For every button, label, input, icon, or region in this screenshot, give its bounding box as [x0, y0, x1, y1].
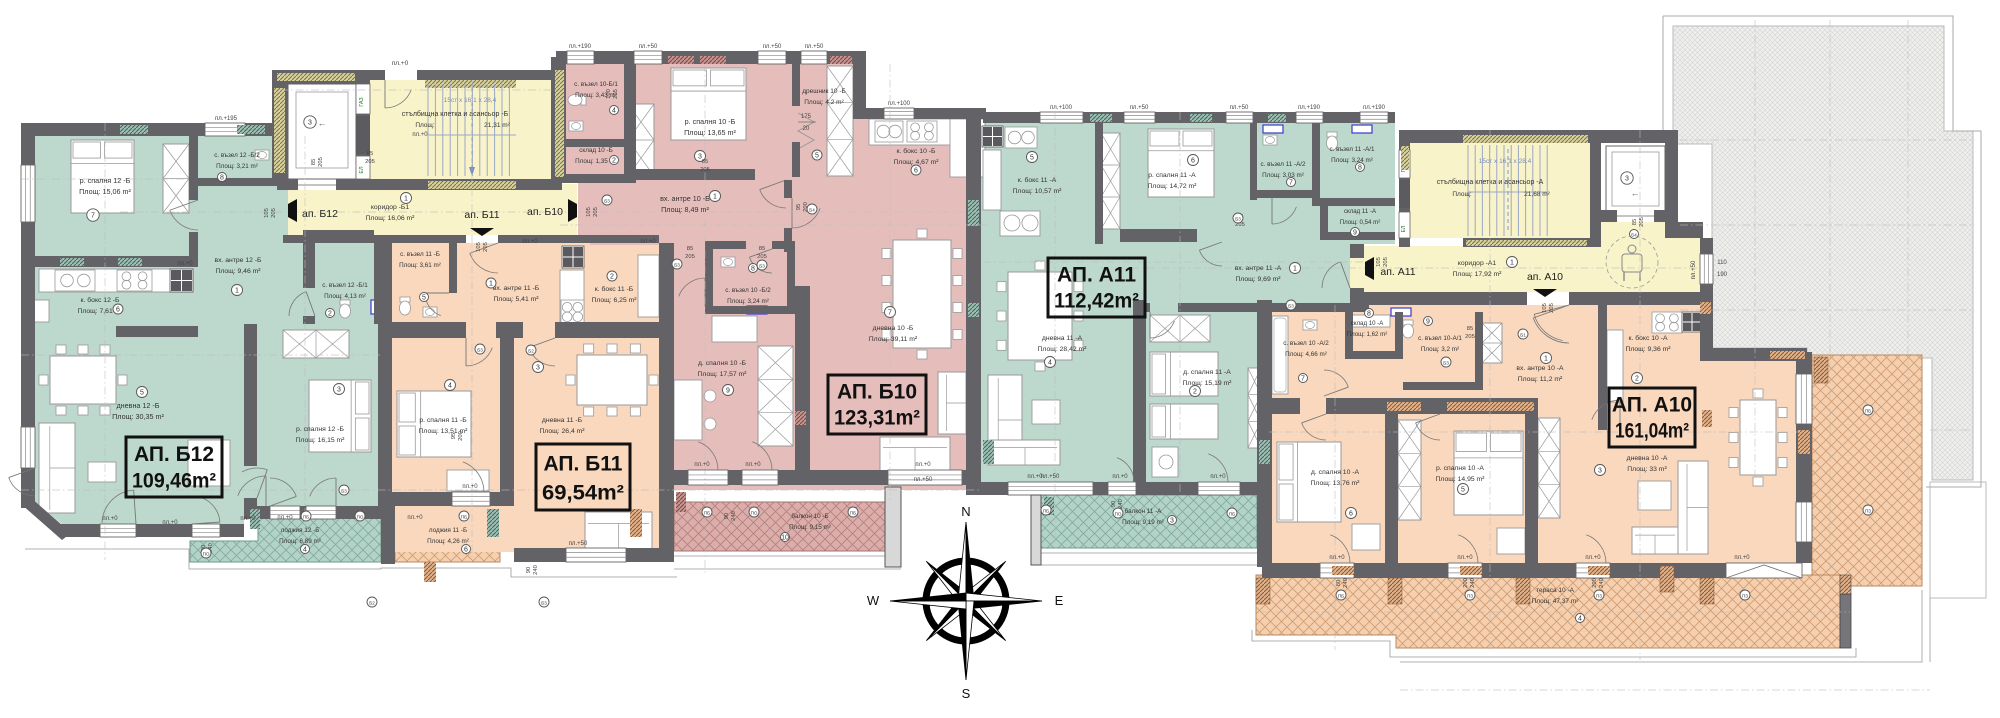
svg-text:90: 90: [724, 513, 730, 519]
svg-text:к. бокс 11 -Б: к. бокс 11 -Б: [595, 285, 634, 293]
svg-text:р. спалня 11 -А: р. спалня 11 -А: [1148, 172, 1196, 179]
svg-text:Площ: 3,61 m²: Площ: 3,61 m²: [399, 262, 441, 269]
svg-text:стълбищна клетка и асансьор -Б: стълбищна клетка и асансьор -Б: [402, 110, 509, 118]
svg-text:дрешник 10 -Б: дрешник 10 -Б: [802, 88, 846, 95]
svg-text:20: 20: [803, 126, 810, 132]
svg-text:ЕЛ: ЕЛ: [1401, 226, 1407, 233]
svg-text:7: 7: [1301, 375, 1305, 382]
svg-text:пл.+50: пл.+50: [639, 44, 658, 50]
svg-text:105: 105: [476, 242, 482, 252]
svg-text:Площ: 33 m²: Площ: 33 m²: [1627, 466, 1667, 473]
svg-text:7: 7: [91, 212, 95, 219]
svg-text:Площ: 30,35 m²: Площ: 30,35 m²: [112, 412, 164, 421]
svg-text:ап. Б12: ап. Б12: [302, 208, 338, 220]
svg-text:Б3: Б3: [1443, 360, 1449, 365]
svg-text:109,46m²: 109,46m²: [132, 469, 216, 492]
svg-text:80: 80: [1336, 580, 1342, 586]
svg-text:205: 205: [365, 159, 375, 165]
svg-text:3: 3: [1625, 175, 1629, 182]
svg-text:1: 1: [1544, 355, 1548, 362]
svg-text:с. възел 11 -А/1: с. възел 11 -А/1: [1329, 146, 1375, 153]
svg-text:пл.+50: пл.+50: [914, 477, 933, 483]
svg-text:ап. Б11: ап. Б11: [464, 209, 499, 221]
svg-text:балкон 10 -Б: балкон 10 -Б: [791, 512, 828, 520]
svg-text:6: 6: [1349, 510, 1353, 517]
svg-text:склад 10 -А: склад 10 -А: [1351, 320, 1384, 327]
svg-text:85: 85: [687, 246, 693, 252]
svg-text:205: 205: [1549, 303, 1555, 313]
svg-text:дневна 10 -Б: дневна 10 -Б: [873, 325, 914, 332]
svg-text:лоджия 11 -Б: лоджия 11 -Б: [429, 527, 467, 534]
svg-text:дневна 11 -А: дневна 11 -А: [1042, 335, 1083, 342]
svg-text:9: 9: [726, 387, 730, 394]
svg-text:дневна 12 -Б: дневна 12 -Б: [116, 401, 159, 410]
svg-text:Площ: 4,2 m²: Площ: 4,2 m²: [804, 99, 844, 106]
svg-text:6: 6: [914, 167, 918, 174]
svg-text:Площ: 9,46 m²: Площ: 9,46 m²: [215, 268, 261, 275]
svg-text:4: 4: [303, 546, 307, 553]
svg-text:с. възел 10 -А/2: с. възел 10 -А/2: [1283, 340, 1329, 347]
svg-text:с. възел 12 -Б/1: с. възел 12 -Б/1: [322, 282, 368, 289]
svg-text:Б2: Б2: [528, 348, 534, 353]
svg-text:Площ: 0,54 m²: Площ: 0,54 m²: [1340, 219, 1380, 226]
svg-text:пл.+50: пл.+50: [1230, 105, 1249, 111]
svg-text:Площ: 15,19 m²: Площ: 15,19 m²: [1183, 380, 1233, 387]
svg-text:S: S: [962, 686, 971, 701]
svg-text:7: 7: [888, 309, 892, 316]
svg-text:ПБ: ПБ: [1338, 593, 1344, 598]
svg-text:пл.+50: пл.+50: [1691, 260, 1697, 279]
svg-text:ПЗ: ПЗ: [1865, 508, 1871, 513]
svg-text:Б3: Б3: [1288, 303, 1294, 308]
svg-text:5: 5: [815, 152, 819, 159]
svg-text:Площ: 47,37 m²: Площ: 47,37 m²: [1532, 598, 1580, 605]
svg-text:Площ: 3,21 m²: Площ: 3,21 m²: [216, 163, 258, 170]
svg-text:склад 10 -Б: склад 10 -Б: [579, 147, 613, 154]
svg-text:240: 240: [1599, 578, 1605, 588]
svg-text:ПО: ПО: [357, 514, 364, 519]
svg-text:пл.+0: пл.+0: [640, 239, 656, 245]
svg-text:205: 205: [483, 242, 489, 252]
svg-text:Б3: Б3: [604, 198, 610, 203]
svg-text:с. възел 12 -Б/2: с. възел 12 -Б/2: [214, 152, 260, 159]
svg-text:85: 85: [367, 151, 373, 157]
svg-text:Площ: 9,15 m²: Площ: 9,15 m²: [789, 524, 831, 531]
svg-text:ПБ: ПБ: [1043, 508, 1049, 513]
svg-text:95: 95: [451, 433, 457, 439]
svg-text:90: 90: [1111, 501, 1117, 507]
svg-text:69,54m²: 69,54m²: [542, 481, 624, 504]
svg-text:Площ: 39,11 m²: Площ: 39,11 m²: [869, 336, 918, 343]
svg-text:Площ: 9,36 m²: Площ: 9,36 m²: [1625, 346, 1671, 353]
svg-text:вх. антре 10 -А: вх. антре 10 -А: [1516, 365, 1564, 372]
svg-text:85: 85: [702, 159, 708, 165]
svg-text:р. спалня 12 -Б: р. спалня 12 -Б: [80, 176, 131, 185]
svg-text:205: 205: [1383, 257, 1389, 267]
svg-text:пл.+0: пл.+0: [915, 462, 931, 468]
svg-text:д. спалня 10 -Б: д. спалня 10 -Б: [698, 360, 747, 367]
svg-text:пл.+0: пл.+0: [1210, 474, 1226, 480]
svg-text:205: 205: [593, 207, 599, 217]
svg-text:85: 85: [1467, 326, 1473, 332]
svg-text:15ст х 16,1 х 28,4: 15ст х 16,1 х 28,4: [1479, 158, 1532, 165]
svg-text:Площ: 14,95 m²: Площ: 14,95 m²: [1436, 476, 1486, 483]
svg-text:205: 205: [318, 157, 324, 167]
svg-text:200: 200: [1463, 578, 1469, 588]
svg-text:пл.+50: пл.+50: [1130, 105, 1149, 111]
svg-text:Площ: 3,24 m²: Площ: 3,24 m²: [727, 298, 769, 305]
svg-text:вх. антре 10 -Б: вх. антре 10 -Б: [660, 194, 710, 203]
svg-text:85: 85: [311, 159, 317, 165]
svg-text:Площ: 3,03 m²: Площ: 3,03 m²: [1262, 172, 1304, 179]
svg-text:Площ: 28,42 m²: Площ: 28,42 m²: [1038, 346, 1088, 353]
svg-text:N: N: [961, 504, 970, 519]
svg-text:ПБ: ПБ: [461, 514, 467, 519]
svg-text:с. възел 11 -Б: с. възел 11 -Б: [400, 251, 440, 258]
svg-text:Б3: Б3: [674, 262, 680, 267]
svg-text:←: ←: [1631, 188, 1640, 198]
svg-text:Б3: Б3: [477, 347, 483, 352]
svg-text:Б4: Б4: [809, 207, 815, 212]
svg-text:200: 200: [1592, 578, 1598, 588]
svg-text:2: 2: [610, 273, 614, 280]
svg-text:9: 9: [1426, 318, 1430, 325]
svg-text:Площ: 26,4 m²: Площ: 26,4 m²: [539, 428, 585, 435]
svg-text:2: 2: [612, 157, 616, 164]
svg-text:пл.+0: пл.+0: [1329, 555, 1345, 561]
svg-text:1: 1: [1293, 265, 1297, 272]
svg-text:Площ: 3,2 m²: Площ: 3,2 m²: [1421, 346, 1459, 353]
svg-text:85: 85: [759, 246, 765, 252]
svg-text:6: 6: [1191, 157, 1195, 164]
svg-text:АП. Б10: АП. Б10: [837, 381, 917, 404]
svg-text:240: 240: [533, 565, 539, 575]
svg-text:Площ: 17,57 m²: Площ: 17,57 m²: [698, 371, 748, 378]
svg-text:1: 1: [1510, 259, 1514, 266]
svg-text:склад 11 -А: склад 11 -А: [1344, 208, 1377, 215]
svg-text:240: 240: [1343, 578, 1349, 588]
svg-text:1: 1: [235, 287, 239, 294]
svg-text:161,04m²: 161,04m²: [1615, 420, 1689, 443]
svg-text:коридор -А1: коридор -А1: [1458, 260, 1497, 267]
svg-text:Площ: 9,69 m²: Площ: 9,69 m²: [1235, 276, 1281, 283]
svg-text:3: 3: [337, 386, 341, 393]
svg-text:пл.+190: пл.+190: [569, 44, 592, 50]
svg-text:2: 2: [1193, 388, 1197, 395]
svg-text:коридор -Б1: коридор -Б1: [371, 204, 410, 211]
svg-text:112,42m²: 112,42m²: [1054, 290, 1139, 313]
svg-text:Б3: Б3: [759, 263, 765, 268]
svg-text:5: 5: [140, 389, 144, 396]
svg-text:дневна 11 -Б: дневна 11 -Б: [542, 417, 583, 424]
svg-text:8: 8: [751, 265, 755, 272]
svg-text:с. възел 10 -Б/2: с. възел 10 -Б/2: [725, 287, 771, 294]
svg-text:пл.+0: пл.+0: [392, 60, 409, 67]
svg-text:Площ: 4,13 m²: Площ: 4,13 m²: [324, 293, 366, 300]
svg-text:8: 8: [220, 174, 224, 181]
svg-text:пл.+0: пл.+0: [1734, 555, 1750, 561]
svg-text:Площ: 13,76 m²: Площ: 13,76 m²: [1311, 480, 1361, 487]
svg-text:175: 175: [801, 114, 812, 120]
svg-text:4: 4: [448, 382, 452, 389]
svg-text:Площ: 4,26 m²: Площ: 4,26 m²: [427, 538, 469, 545]
svg-text:205: 205: [1639, 217, 1645, 227]
svg-text:пл.+0: пл.+0: [522, 239, 538, 245]
svg-text:Площ: 15,06 m²: Площ: 15,06 m²: [79, 187, 131, 196]
svg-text:90: 90: [526, 567, 532, 573]
svg-text:Б1: Б1: [1520, 332, 1526, 337]
svg-text:пл.+0: пл.+0: [1585, 555, 1601, 561]
svg-text:Площ: 16,15 m²: Площ: 16,15 m²: [296, 437, 346, 444]
svg-text:пл.+50: пл.+50: [1041, 474, 1060, 480]
svg-text:Площ: 3,24 m²: Площ: 3,24 m²: [1331, 157, 1373, 164]
svg-text:Площ: 5,41 m²: Площ: 5,41 m²: [493, 296, 539, 303]
svg-text:Площ: 4,66 m²: Площ: 4,66 m²: [1285, 351, 1327, 358]
svg-text:E: E: [1055, 593, 1064, 608]
svg-text:5: 5: [422, 294, 426, 301]
svg-text:к. бокс 12 -Б: к. бокс 12 -Б: [81, 296, 120, 304]
svg-text:110: 110: [1717, 260, 1727, 266]
svg-text:ПО: ПО: [203, 551, 210, 556]
svg-text:21,31 m²: 21,31 m²: [484, 122, 510, 129]
svg-text:15ст х 16,1 х 28,4: 15ст х 16,1 х 28,4: [444, 97, 497, 104]
svg-text:р. спалня 11 -Б: р. спалня 11 -Б: [419, 417, 467, 424]
svg-text:пл.+0: пл.+0: [177, 261, 193, 267]
svg-text:ПБ: ПБ: [303, 514, 309, 519]
svg-text:←: ←: [318, 118, 327, 128]
svg-text:тераса 10 -А: тераса 10 -А: [1536, 587, 1575, 594]
svg-text:9: 9: [1353, 229, 1357, 236]
svg-text:Площ: 14,72 m²: Площ: 14,72 m²: [1148, 183, 1198, 190]
svg-text:3: 3: [1170, 517, 1174, 524]
svg-text:д. спалня 11 -А: д. спалня 11 -А: [1183, 369, 1231, 376]
svg-text:пл.+0: пл.+0: [277, 515, 293, 521]
svg-text:Площ: 17,92 m²: Площ: 17,92 m²: [1453, 271, 1503, 278]
svg-text:10: 10: [781, 534, 789, 541]
svg-text:8: 8: [1358, 164, 1362, 171]
svg-text:2: 2: [328, 310, 332, 317]
svg-text:Б2: Б2: [369, 600, 375, 605]
svg-text:ап. Б10: ап. Б10: [527, 206, 563, 218]
svg-text:пл.+100: пл.+100: [1050, 105, 1073, 111]
svg-text:с. възел 10-А/1: с. възел 10-А/1: [1418, 335, 1462, 342]
svg-text:2: 2: [1635, 375, 1639, 382]
svg-text:вх. антре 12 -Б: вх. антре 12 -Б: [214, 257, 262, 264]
svg-text:Площ: 9,19 m²: Площ: 9,19 m²: [1122, 519, 1164, 526]
svg-text:пл.+50: пл.+50: [569, 541, 588, 547]
svg-text:Б4: Б4: [1631, 232, 1637, 237]
svg-text:Б3: Б3: [1235, 216, 1241, 221]
svg-text:95: 95: [796, 204, 802, 210]
svg-text:W: W: [867, 593, 880, 608]
svg-text:ПБ: ПБ: [1865, 408, 1871, 413]
svg-text:105: 105: [264, 208, 270, 218]
svg-text:пл.+195: пл.+195: [215, 116, 238, 122]
svg-text:Площ: 13,65 m²: Площ: 13,65 m²: [684, 128, 736, 137]
svg-text:пл.+0: пл.+0: [1457, 555, 1473, 561]
svg-text:Площ: 6,89 m²: Площ: 6,89 m²: [279, 538, 321, 545]
svg-text:пл.+100: пл.+100: [888, 101, 911, 107]
svg-text:105: 105: [1542, 303, 1548, 313]
svg-text:1: 1: [713, 193, 717, 200]
svg-text:6: 6: [116, 306, 120, 313]
svg-text:Площ: 6,25 m²: Площ: 6,25 m²: [591, 297, 637, 304]
svg-text:вх. антре 11 -А: вх. антре 11 -А: [1235, 265, 1282, 272]
svg-text:пл.+50: пл.+50: [763, 44, 782, 50]
svg-text:к. бокс 10 -А: к. бокс 10 -А: [1628, 334, 1667, 342]
svg-text:100: 100: [606, 89, 612, 99]
svg-text:6: 6: [464, 546, 468, 553]
svg-text:Площ:: Площ:: [415, 122, 435, 129]
svg-text:вх. антре 11 -Б: вх. антре 11 -Б: [493, 285, 540, 292]
svg-text:пл.+0: пл.+0: [240, 516, 256, 522]
svg-text:5: 5: [1461, 486, 1465, 493]
svg-text:8: 8: [1367, 310, 1371, 317]
svg-text:АП. А10: АП. А10: [1612, 394, 1692, 417]
svg-text:пл.+0: пл.+0: [694, 462, 710, 468]
svg-text:205: 205: [700, 167, 710, 173]
svg-text:пл.+0: пл.+0: [745, 462, 761, 468]
svg-text:АП. Б11: АП. Б11: [544, 452, 623, 475]
svg-text:205: 205: [613, 89, 619, 99]
svg-text:3: 3: [1598, 467, 1602, 474]
svg-text:Б3: Б3: [541, 600, 547, 605]
svg-text:240: 240: [731, 511, 737, 521]
svg-text:ПО: ПО: [751, 510, 758, 515]
svg-text:лоджия 12 -Б: лоджия 12 -Б: [281, 527, 320, 534]
svg-text:Площ: 11,2 m²: Площ: 11,2 m²: [1518, 376, 1563, 383]
svg-text:4: 4: [612, 107, 616, 114]
svg-text:Площ: 16,06 m²: Площ: 16,06 m²: [366, 215, 416, 222]
svg-text:дневна 10 -А: дневна 10 -А: [1627, 455, 1668, 462]
svg-text:ап. А10: ап. А10: [1527, 271, 1563, 283]
svg-text:с. възел 11 -А/2: с. възел 11 -А/2: [1260, 161, 1306, 168]
svg-text:пл.+190: пл.+190: [1363, 105, 1386, 111]
svg-text:3: 3: [536, 364, 540, 371]
svg-text:1: 1: [489, 280, 493, 287]
svg-text:к. бокс 10 -Б: к. бокс 10 -Б: [897, 147, 936, 155]
svg-text:р. спалня 10 -Б: р. спалня 10 -Б: [685, 117, 736, 126]
svg-text:105: 105: [586, 207, 592, 217]
svg-text:205: 205: [1465, 334, 1475, 340]
svg-text:пл.+0: пл.+0: [162, 520, 178, 526]
svg-text:пл.+0: пл.+0: [1112, 474, 1128, 480]
svg-text:1: 1: [404, 195, 408, 202]
svg-text:3: 3: [308, 119, 312, 126]
svg-text:85: 85: [1632, 219, 1638, 225]
svg-text:21,68 m²: 21,68 m²: [1524, 191, 1550, 198]
svg-text:205: 205: [685, 254, 695, 260]
svg-text:Площ: 10,57 m²: Площ: 10,57 m²: [1013, 188, 1063, 195]
svg-text:пл.+190: пл.+190: [1298, 105, 1321, 111]
svg-text:7: 7: [1289, 179, 1293, 186]
svg-text:4: 4: [1578, 615, 1582, 622]
svg-text:ПЗ: ПЗ: [1467, 593, 1473, 598]
svg-text:105: 105: [1376, 257, 1382, 267]
svg-text:с. възел 10-Б/1: с. възел 10-Б/1: [574, 81, 618, 88]
svg-text:ПБ: ПБ: [850, 510, 856, 515]
svg-text:205: 205: [757, 254, 767, 260]
svg-text:123,31m²: 123,31m²: [834, 407, 920, 430]
svg-text:ПЗ: ПЗ: [1742, 593, 1748, 598]
svg-text:ЕЛ: ЕЛ: [359, 166, 365, 174]
svg-text:240: 240: [1118, 499, 1124, 509]
svg-text:пл.+0: пл.+0: [462, 484, 478, 490]
svg-text:205: 205: [271, 208, 277, 218]
svg-text:ПО: ПО: [1115, 511, 1122, 516]
svg-text:пл.+0: пл.+0: [102, 516, 118, 522]
svg-text:ПБ: ПБ: [1229, 511, 1235, 516]
svg-text:АП. А11: АП. А11: [1057, 264, 1136, 287]
svg-text:5: 5: [1030, 154, 1034, 161]
svg-text:Площ: 1,62 m²: Площ: 1,62 m²: [1347, 331, 1387, 338]
svg-text:240: 240: [1470, 578, 1476, 588]
svg-text:р. спалня 12 -Б: р. спалня 12 -Б: [296, 426, 344, 433]
svg-text:Б3: Б3: [341, 488, 347, 493]
svg-text:д. спалня 10 -А: д. спалня 10 -А: [1311, 469, 1360, 476]
svg-text:АП. Б12: АП. Б12: [134, 443, 214, 466]
svg-text:190: 190: [1717, 272, 1728, 278]
svg-text:ГАЗ: ГАЗ: [359, 97, 365, 107]
svg-text:балкон 11 -А: балкон 11 -А: [1125, 507, 1163, 515]
svg-text:пл.+0: пл.+0: [412, 132, 428, 138]
svg-text:4: 4: [1048, 359, 1052, 366]
svg-text:Площ:: Площ:: [1452, 191, 1472, 198]
svg-text:пл.+50: пл.+50: [805, 44, 824, 50]
svg-text:Площ: 8,49 m²: Площ: 8,49 m²: [661, 205, 709, 214]
svg-text:ПБ: ПБ: [704, 510, 710, 515]
svg-text:200: 200: [458, 431, 464, 441]
svg-text:пл.+0: пл.+0: [407, 515, 423, 521]
svg-text:ПЗ: ПЗ: [1596, 593, 1602, 598]
svg-text:р. спалня 10 -А: р. спалня 10 -А: [1436, 465, 1484, 472]
svg-text:к. бокс 11 -А: к. бокс 11 -А: [1018, 176, 1057, 184]
